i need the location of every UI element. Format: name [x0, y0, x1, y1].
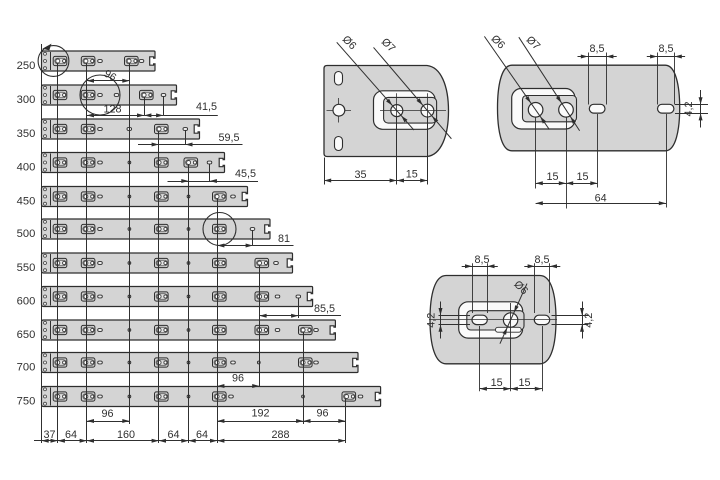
svg-text:450: 450	[17, 196, 36, 208]
svg-text:85,5: 85,5	[314, 303, 335, 315]
svg-text:37: 37	[43, 429, 55, 441]
svg-text:96: 96	[316, 408, 328, 420]
svg-text:64: 64	[196, 429, 208, 441]
svg-text:15: 15	[518, 377, 530, 389]
svg-text:550: 550	[17, 262, 36, 274]
svg-text:8,5: 8,5	[658, 43, 673, 55]
svg-text:600: 600	[17, 296, 36, 308]
svg-text:15: 15	[546, 171, 558, 183]
svg-text:8,5: 8,5	[534, 254, 549, 266]
svg-text:45,5: 45,5	[235, 168, 256, 180]
svg-text:59,5: 59,5	[218, 132, 239, 144]
svg-text:64: 64	[595, 193, 607, 205]
svg-text:400: 400	[17, 162, 36, 174]
svg-text:64: 64	[167, 429, 179, 441]
svg-text:64: 64	[65, 429, 77, 441]
svg-text:41,5: 41,5	[196, 101, 217, 113]
svg-text:96: 96	[101, 408, 113, 420]
svg-text:81: 81	[278, 233, 290, 245]
svg-text:288: 288	[271, 429, 289, 441]
svg-text:350: 350	[17, 128, 36, 140]
svg-text:4,2: 4,2	[426, 313, 438, 328]
svg-text:700: 700	[17, 362, 36, 374]
svg-text:15: 15	[576, 171, 588, 183]
svg-text:8,5: 8,5	[474, 254, 489, 266]
svg-text:15: 15	[491, 377, 503, 389]
svg-text:15: 15	[406, 169, 418, 181]
svg-text:160: 160	[117, 429, 135, 441]
svg-text:128: 128	[103, 103, 121, 115]
svg-text:750: 750	[17, 396, 36, 408]
svg-text:35: 35	[354, 169, 366, 181]
svg-text:250: 250	[17, 60, 36, 72]
svg-text:8,5: 8,5	[589, 43, 604, 55]
svg-text:4,2: 4,2	[683, 101, 695, 116]
svg-text:4,2: 4,2	[583, 313, 595, 328]
svg-text:96: 96	[232, 373, 244, 385]
svg-text:650: 650	[17, 329, 36, 341]
svg-text:300: 300	[17, 94, 36, 106]
svg-text:192: 192	[251, 408, 269, 420]
svg-text:500: 500	[17, 228, 36, 240]
